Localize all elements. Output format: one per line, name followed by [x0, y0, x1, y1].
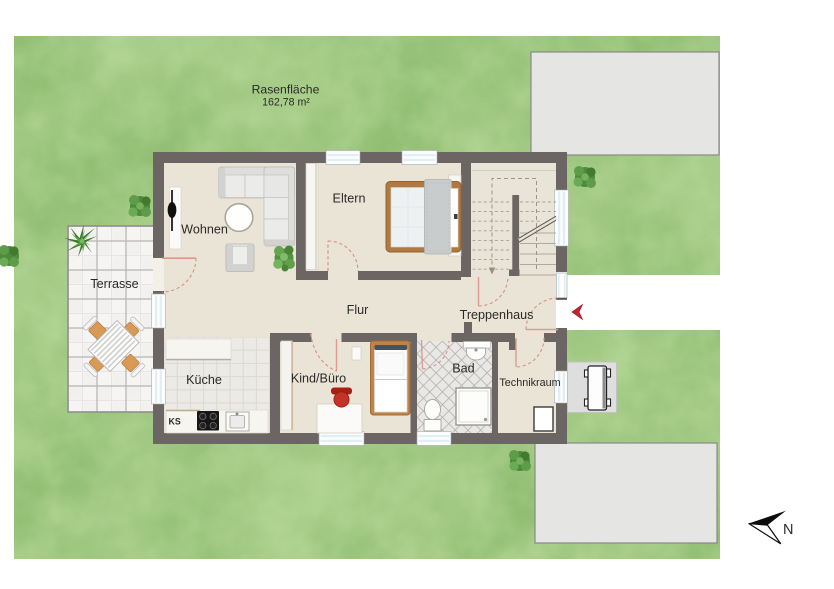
svg-text:Rasenfläche: Rasenfläche — [252, 83, 320, 97]
svg-text:Terrasse: Terrasse — [90, 277, 138, 291]
svg-text:Wohnen: Wohnen — [181, 223, 228, 237]
svg-text:Flur: Flur — [347, 303, 369, 317]
svg-text:KS: KS — [169, 417, 181, 427]
svg-text:Bad: Bad — [452, 362, 474, 376]
svg-text:162,78 m²: 162,78 m² — [262, 97, 310, 109]
svg-text:Kind/Büro: Kind/Büro — [291, 372, 346, 386]
svg-text:Küche: Küche — [186, 373, 222, 387]
svg-text:Treppenhaus: Treppenhaus — [460, 308, 534, 322]
svg-text:N: N — [783, 522, 793, 538]
svg-text:Technikraum: Technikraum — [499, 377, 560, 389]
svg-text:Eltern: Eltern — [333, 192, 366, 206]
